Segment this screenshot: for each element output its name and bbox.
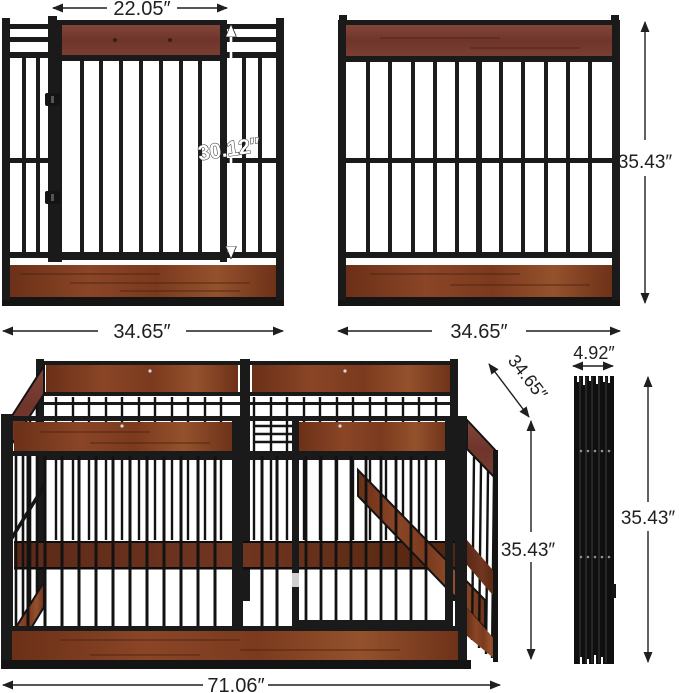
gate-width-label: 22.05″ [113, 0, 170, 20]
screw [343, 369, 346, 372]
hinge-slit [51, 96, 54, 103]
pen-width-label: 71.06″ [207, 675, 264, 693]
mid-rail [10, 158, 48, 163]
folded-width-dimension: 4.92″ [573, 343, 615, 366]
dimension-diagram: 22.05″ 30.12″ 34.65″ 35.43″ [0, 0, 679, 693]
bottom-wood-plank [8, 265, 276, 297]
ladder-rung [227, 24, 276, 29]
gate-latch [292, 573, 299, 587]
folded-height-dimension: 35.43″ [621, 377, 676, 662]
door-left-frame [55, 20, 62, 262]
mid-rail [346, 158, 612, 163]
folded-panels-view [574, 376, 616, 664]
pen-depth-dimension: 34.65″ [489, 351, 552, 417]
far-right-edge [493, 450, 498, 662]
ladder-rung [10, 37, 48, 42]
side-panel-width-dimension: 34.65″ [338, 321, 620, 343]
screw [113, 38, 117, 42]
rail [346, 56, 612, 62]
screw [168, 38, 172, 42]
bottom-rail [346, 252, 612, 258]
ladder-rail [227, 52, 276, 58]
pen-height-label: 35.43″ [501, 540, 556, 561]
bottom-rail [227, 252, 276, 258]
gate-wood-plank [298, 422, 449, 451]
pen-width-dimension: 71.06″ [3, 675, 500, 693]
gate-right-post [445, 420, 453, 632]
screw [148, 369, 151, 372]
door-bottom-rail [55, 252, 227, 260]
pen-height-dimension: 35.43″ [501, 421, 556, 659]
door-wood-plank [62, 25, 220, 55]
gate-panel-width-label: 34.65″ [113, 321, 170, 343]
panel-base [338, 297, 620, 306]
folded-width-label: 4.92″ [573, 343, 615, 363]
left-section-bars [24, 58, 38, 252]
ladder-rung [10, 24, 48, 29]
side-panel-height-dimension: 35.43″ [618, 22, 673, 303]
side-panel-width-label: 34.65″ [450, 321, 507, 343]
pen-base [1, 660, 471, 669]
ladder-rail [10, 52, 48, 58]
side-panel-view [338, 15, 620, 306]
screw [338, 424, 341, 427]
gate-width-dimension: 22.05″ [53, 0, 227, 20]
hinge-slit [51, 194, 54, 201]
door-bars [82, 61, 200, 252]
folded-height-label: 35.43″ [621, 508, 676, 529]
top-wood-plank [346, 25, 612, 56]
gate-left-post [292, 420, 299, 632]
pen-depth-label: 34.65″ [504, 351, 552, 404]
screw [120, 424, 123, 427]
right-post [276, 18, 284, 300]
panel-base [2, 297, 284, 306]
gate-panel-view [2, 16, 284, 306]
bottom-rail [10, 252, 48, 258]
left-post [338, 20, 346, 300]
back-wood-plank [46, 365, 238, 392]
bottom-wood-plank [346, 265, 612, 297]
hinge-knuckle [612, 584, 616, 598]
front-bottom-rail [3, 626, 465, 631]
front-bottom-plank [12, 631, 458, 661]
top-rail [338, 20, 620, 25]
gate-bottom-rail [292, 620, 453, 627]
side-panel-height-label: 35.43″ [618, 152, 673, 173]
door-top-rail [55, 20, 227, 25]
left-post [2, 18, 10, 300]
ladder-rung [227, 37, 276, 42]
door-rail [55, 55, 227, 61]
back-wood-plank [252, 365, 452, 392]
gate-panel-width-dimension: 34.65″ [3, 321, 283, 343]
assembled-pen-view [1, 359, 498, 669]
